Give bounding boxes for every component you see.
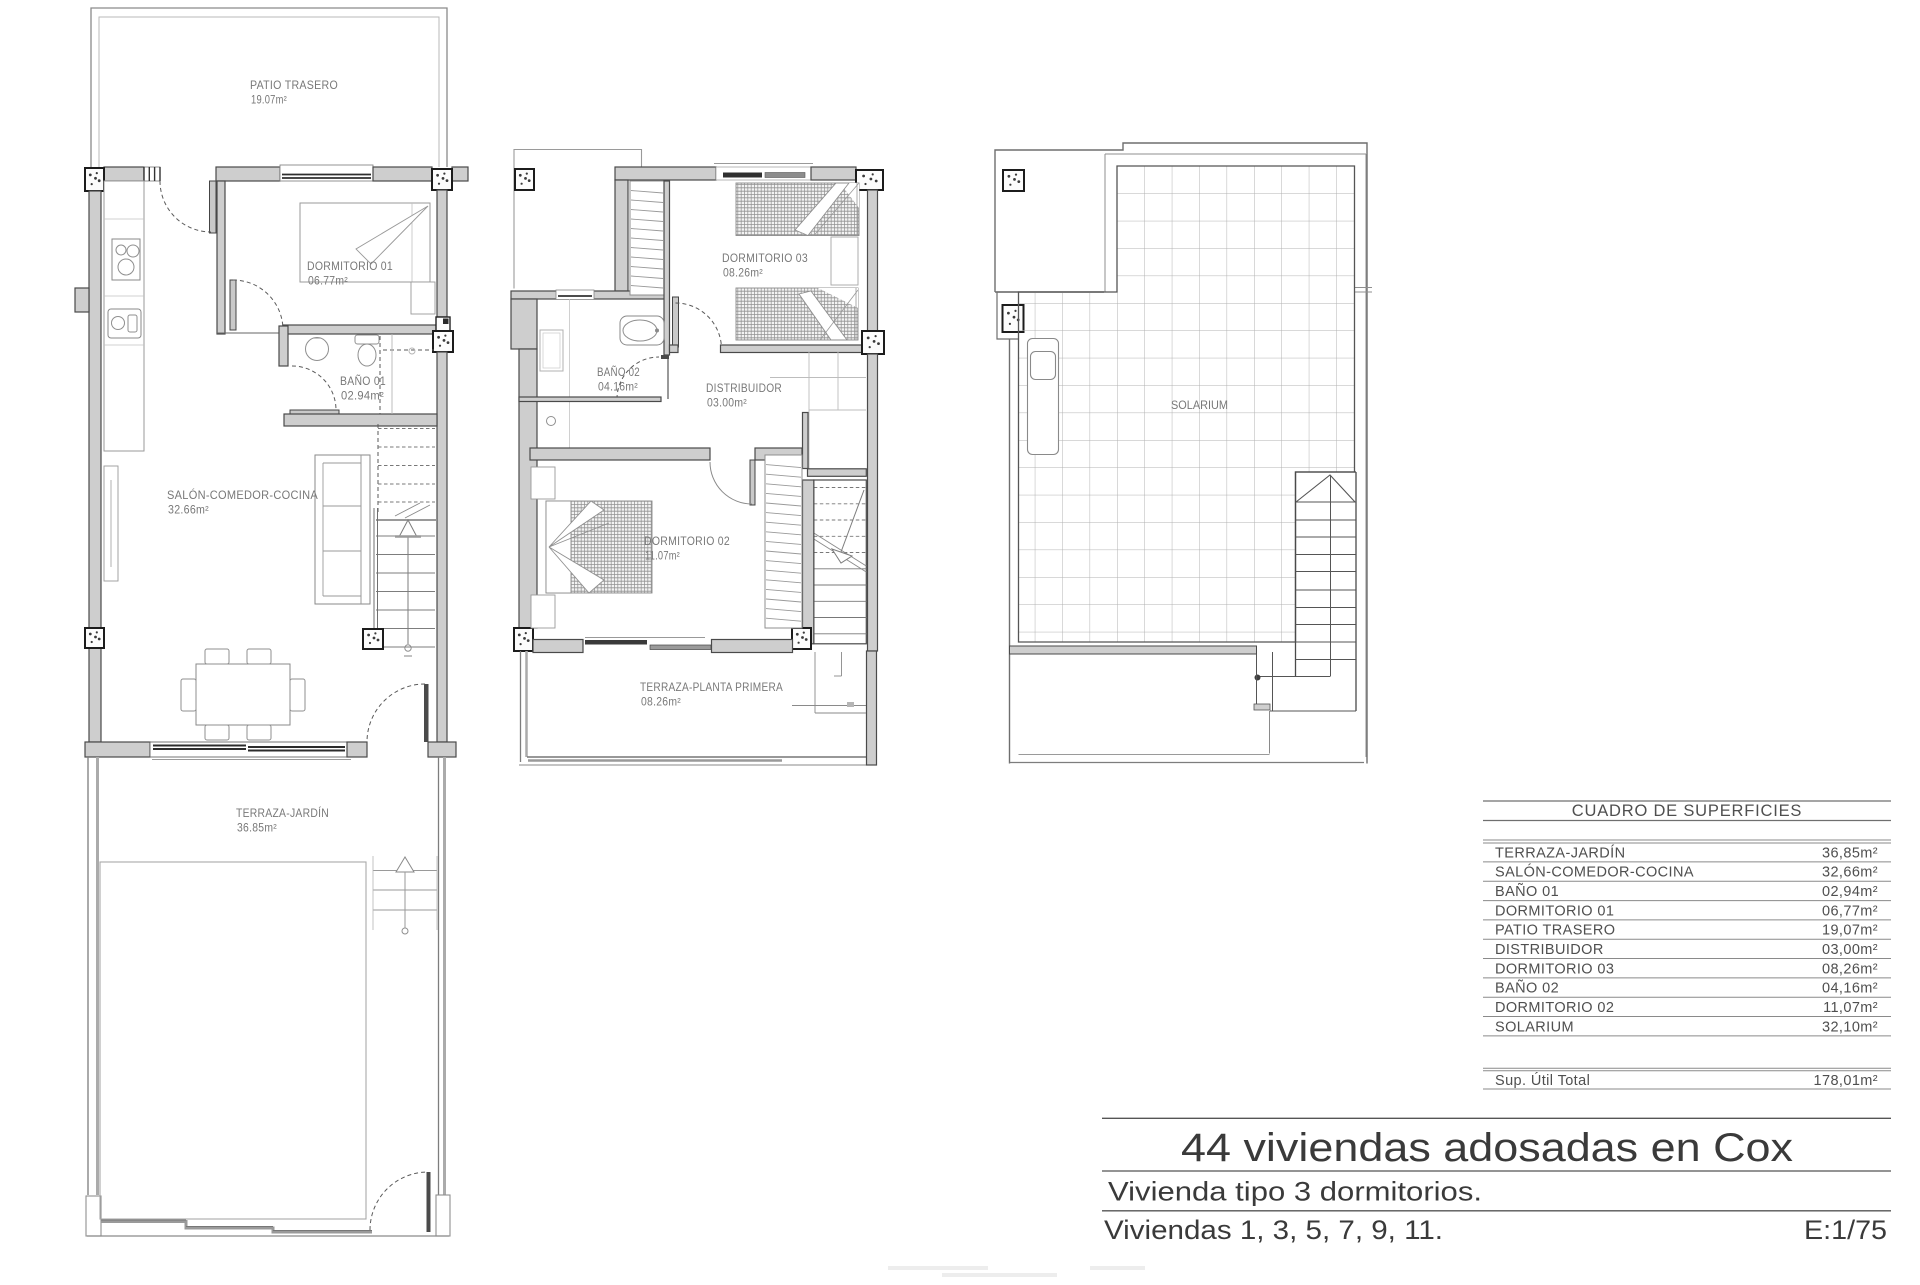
svg-text:CUADRO DE SUPERFICIES: CUADRO DE SUPERFICIES [1572, 802, 1802, 820]
svg-text:SALÓN-COMEDOR-COCINA: SALÓN-COMEDOR-COCINA [1495, 864, 1694, 881]
svg-text:DISTRIBUIDOR: DISTRIBUIDOR [706, 383, 782, 395]
svg-text:11.07m²: 11.07m² [645, 551, 680, 563]
svg-text:PATIO TRASERO: PATIO TRASERO [250, 80, 338, 92]
svg-text:DORMITORIO 03: DORMITORIO 03 [722, 253, 808, 265]
svg-text:32,66m²: 32,66m² [1822, 865, 1878, 881]
svg-text:BAÑO 01: BAÑO 01 [340, 375, 386, 388]
svg-text:DORMITORIO 02: DORMITORIO 02 [644, 536, 730, 548]
svg-text:TERRAZA-PLANTA PRIMERA: TERRAZA-PLANTA PRIMERA [640, 682, 783, 694]
svg-text:11,07m²: 11,07m² [1823, 1000, 1878, 1016]
svg-text:SALÓN-COMEDOR-COCINA: SALÓN-COMEDOR-COCINA [167, 489, 318, 502]
svg-text:SOLARIUM: SOLARIUM [1495, 1019, 1574, 1035]
svg-text:08.26m²: 08.26m² [641, 697, 681, 709]
svg-text:02.94m²: 02.94m² [341, 391, 384, 403]
svg-text:08.26m²: 08.26m² [723, 268, 763, 280]
svg-text:Viviendas 1, 3, 5, 7, 9, 11.: Viviendas 1, 3, 5, 7, 9, 11. [1104, 1215, 1443, 1245]
svg-text:Sup. Útil Total: Sup. Útil Total [1495, 1072, 1590, 1089]
svg-text:TERRAZA-JARDÍN: TERRAZA-JARDÍN [236, 807, 329, 820]
svg-text:03,00m²: 03,00m² [1822, 942, 1878, 958]
svg-text:44 viviendas adosadas en Cox: 44 viviendas adosadas en Cox [1181, 1126, 1793, 1170]
svg-text:36,85m²: 36,85m² [1822, 845, 1878, 861]
svg-text:178,01m²: 178,01m² [1814, 1073, 1878, 1089]
svg-text:06.77m²: 06.77m² [308, 276, 348, 288]
svg-text:SOLARIUM: SOLARIUM [1171, 400, 1228, 412]
svg-text:19.07m²: 19.07m² [251, 95, 287, 107]
svg-text:06,77m²: 06,77m² [1822, 903, 1878, 919]
svg-text:08,26m²: 08,26m² [1822, 961, 1878, 977]
svg-text:19,07m²: 19,07m² [1822, 923, 1878, 939]
svg-text:DISTRIBUIDOR: DISTRIBUIDOR [1495, 942, 1604, 958]
svg-text:Vivienda tipo 3 dormitorios.: Vivienda tipo 3 dormitorios. [1108, 1177, 1482, 1207]
svg-text:36.85m²: 36.85m² [237, 823, 277, 835]
svg-text:32.66m²: 32.66m² [168, 505, 209, 517]
svg-text:PATIO TRASERO: PATIO TRASERO [1495, 923, 1615, 939]
svg-text:E:1/75: E:1/75 [1804, 1215, 1887, 1245]
svg-text:TERRAZA-JARDÍN: TERRAZA-JARDÍN [1495, 844, 1625, 861]
svg-text:DORMITORIO 01: DORMITORIO 01 [307, 261, 393, 273]
svg-text:03.00m²: 03.00m² [707, 398, 747, 410]
svg-text:DORMITORIO 02: DORMITORIO 02 [1495, 1000, 1614, 1016]
svg-text:04,16m²: 04,16m² [1822, 981, 1878, 997]
svg-text:DORMITORIO 03: DORMITORIO 03 [1495, 961, 1614, 977]
svg-text:BAÑO 02: BAÑO 02 [1495, 980, 1559, 997]
svg-text:DORMITORIO 01: DORMITORIO 01 [1495, 903, 1614, 919]
svg-text:BAÑO 02: BAÑO 02 [597, 366, 640, 379]
svg-text:BAÑO 01: BAÑO 01 [1495, 883, 1559, 900]
svg-text:32,10m²: 32,10m² [1822, 1019, 1878, 1035]
svg-text:02,94m²: 02,94m² [1822, 884, 1878, 900]
